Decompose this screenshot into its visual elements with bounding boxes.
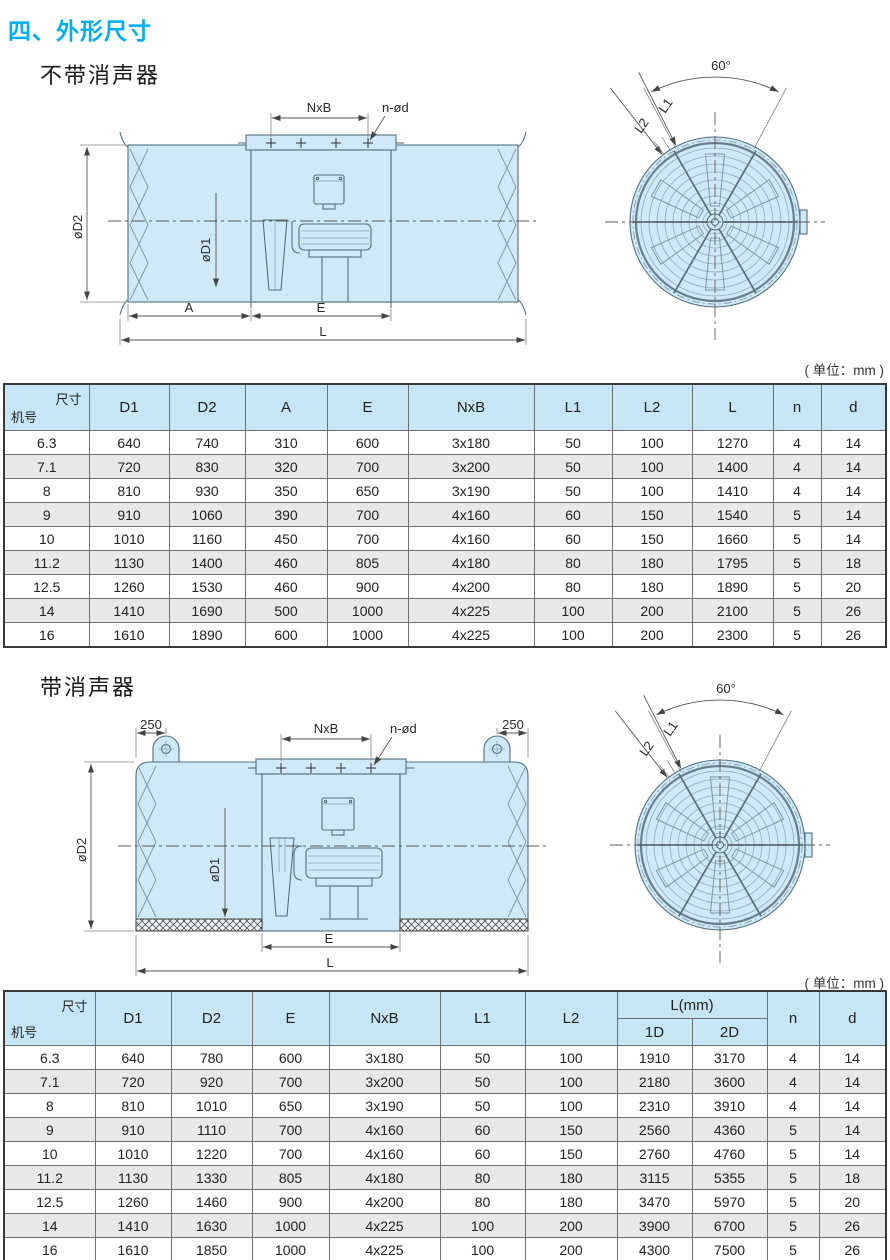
- dimensions-table-no-silencer: 尺寸 机号 D1 D2 A E NxB L1 L2 L n d 6.364074…: [3, 383, 887, 648]
- table-cell: 700: [252, 1142, 329, 1166]
- table-row: 6.36407806003x1805010019103170414: [4, 1046, 886, 1070]
- flange-offset-dimensions: L1 L2: [610, 72, 676, 155]
- column-header: L1: [440, 991, 525, 1046]
- dim-label-od2: øD2: [74, 838, 89, 863]
- table-cell: 640: [95, 1046, 171, 1070]
- column-header: D1: [89, 384, 169, 431]
- junction-box: [314, 175, 344, 209]
- dim-label-od1: øD1: [207, 858, 222, 883]
- table-cell: 100: [440, 1238, 525, 1260]
- table-cell: 26: [821, 599, 886, 623]
- table-cell: 14: [821, 455, 886, 479]
- table-cell: 3x190: [408, 479, 534, 503]
- table-cell: 4: [773, 479, 821, 503]
- table-row: 141410169050010004x2251002002100526: [4, 599, 886, 623]
- corner-label-size: 尺寸: [55, 389, 81, 408]
- table-cell: 80: [440, 1190, 525, 1214]
- table-cell: 6.3: [4, 1046, 95, 1070]
- table-row: 88109303506503x190501001410414: [4, 479, 886, 503]
- table-cell: 50: [440, 1070, 525, 1094]
- table-cell: 4x180: [329, 1166, 440, 1190]
- table-cell: 900: [327, 575, 408, 599]
- table-cell: 200: [525, 1238, 617, 1260]
- column-header: d: [819, 991, 886, 1046]
- table-cell: 11.2: [4, 551, 89, 575]
- table-cell: 1010: [171, 1094, 252, 1118]
- table-row: 7.17208303207003x200501001400414: [4, 455, 886, 479]
- table-cell: 180: [525, 1190, 617, 1214]
- dim-label-od1: øD1: [198, 238, 213, 263]
- table-cell: 1160: [169, 527, 245, 551]
- column-header: n: [773, 384, 821, 431]
- table-cell: 600: [245, 623, 327, 648]
- table-cell: 3600: [692, 1070, 767, 1094]
- table-cell: 4x225: [329, 1214, 440, 1238]
- table-cell: 805: [252, 1166, 329, 1190]
- table-cell: 810: [89, 479, 169, 503]
- column-header: A: [245, 384, 327, 431]
- table-cell: 5: [767, 1142, 819, 1166]
- section-heading-no-silencer: 不带消声器: [40, 58, 160, 90]
- table-cell: 9: [4, 503, 89, 527]
- corner-label-model: 机号: [11, 1022, 37, 1041]
- table-cell: 4360: [692, 1118, 767, 1142]
- table-cell: 5: [773, 503, 821, 527]
- table-cell: 180: [525, 1166, 617, 1190]
- table-cell: 1000: [327, 623, 408, 648]
- table-cell: 12.5: [4, 1190, 95, 1214]
- dim-label-angle: 60°: [711, 58, 731, 73]
- table-cell: 720: [89, 455, 169, 479]
- table-row: 12.5126014609004x2008018034705970520: [4, 1190, 886, 1214]
- table-cell: 3x200: [329, 1070, 440, 1094]
- column-subheader-2d: 2D: [692, 1019, 767, 1046]
- front-view-drawing-1: 60° L1 L2: [600, 40, 890, 355]
- table-header-row: 尺寸 机号 D1 D2 A E NxB L1 L2 L n d: [4, 384, 886, 431]
- side-view-drawing-with-silencer: 250 250 NxB n-ød øD2 øD1 E L: [58, 690, 583, 990]
- table-cell: 3170: [692, 1046, 767, 1070]
- table-cell: 1890: [692, 575, 773, 599]
- table-cell: 100: [525, 1046, 617, 1070]
- table-cell: 600: [327, 431, 408, 455]
- table-cell: 1610: [95, 1238, 171, 1260]
- table-row: 161610189060010004x2251002002300526: [4, 623, 886, 648]
- table-cell: 8: [4, 479, 89, 503]
- table-cell: 60: [534, 527, 612, 551]
- table-cell: 7.1: [4, 1070, 95, 1094]
- table-cell: 6700: [692, 1214, 767, 1238]
- table-cell: 80: [534, 575, 612, 599]
- flange-offset-dimensions: L1 L2: [615, 695, 681, 778]
- table-cell: 910: [89, 503, 169, 527]
- table-cell: 5: [773, 623, 821, 648]
- table-cell: 1000: [252, 1214, 329, 1238]
- unit-note-1: ( 单位：mm ): [600, 359, 884, 379]
- table-cell: 50: [440, 1094, 525, 1118]
- table-cell: 180: [612, 575, 692, 599]
- table-cell: 1460: [171, 1190, 252, 1214]
- table-cell: 3x180: [408, 431, 534, 455]
- table-cell: 390: [245, 503, 327, 527]
- table-cell: 5: [767, 1214, 819, 1238]
- table-cell: 100: [612, 455, 692, 479]
- junction-box: [322, 798, 354, 835]
- table-row: 991010603907004x160601501540514: [4, 503, 886, 527]
- table-cell: 5970: [692, 1190, 767, 1214]
- table-cell: 20: [819, 1190, 886, 1214]
- column-header: L2: [612, 384, 692, 431]
- table-cell: 640: [89, 431, 169, 455]
- table-cell: 4x160: [408, 527, 534, 551]
- table-cell: 14: [4, 599, 89, 623]
- table-cell: 930: [169, 479, 245, 503]
- column-header: n: [767, 991, 819, 1046]
- table-row: 881010106503x1905010023103910414: [4, 1094, 886, 1118]
- table-cell: 2180: [617, 1070, 692, 1094]
- table-cell: 3x190: [329, 1094, 440, 1118]
- table-cell: 1410: [95, 1214, 171, 1238]
- table-cell: 150: [525, 1142, 617, 1166]
- table-cell: 460: [245, 551, 327, 575]
- table-cell: 1220: [171, 1142, 252, 1166]
- dim-label-lug-left: 250: [140, 717, 162, 732]
- table-cell: 740: [169, 431, 245, 455]
- table-cell: 4x225: [408, 623, 534, 648]
- table-row: 10101011604507004x160601501660514: [4, 527, 886, 551]
- table-cell: 1410: [89, 599, 169, 623]
- table-cell: 700: [252, 1070, 329, 1094]
- table-cell: 4x160: [408, 503, 534, 527]
- table-cell: 310: [245, 431, 327, 455]
- table-cell: 1270: [692, 431, 773, 455]
- unit-note-2: ( 单位：mm ): [600, 972, 884, 992]
- table-cell: 1610: [89, 623, 169, 648]
- table-cell: 60: [534, 503, 612, 527]
- dim-label-nxb: NxB: [314, 721, 339, 736]
- table-cell: 100: [525, 1094, 617, 1118]
- table-cell: 10: [4, 527, 89, 551]
- table-cell: 805: [327, 551, 408, 575]
- table-cell: 4x160: [329, 1142, 440, 1166]
- table-cell: 60: [440, 1118, 525, 1142]
- table-cell: 6.3: [4, 431, 89, 455]
- table-cell: 1000: [252, 1238, 329, 1260]
- column-header-l-group: L(mm): [617, 991, 767, 1019]
- dim-label-nxb: NxB: [307, 100, 332, 115]
- table-cell: 2560: [617, 1118, 692, 1142]
- table-cell: 2100: [692, 599, 773, 623]
- dim-label-l1: L1: [655, 95, 676, 115]
- table-cell: 700: [327, 455, 408, 479]
- table-cell: 1540: [692, 503, 773, 527]
- table-row: 10101012207004x1606015027604760514: [4, 1142, 886, 1166]
- table-row: 11.2113013308054x1808018031155355518: [4, 1166, 886, 1190]
- table-cell: 4x200: [408, 575, 534, 599]
- silencer-lining-right: [400, 919, 528, 931]
- table-row: 161610185010004x22510020043007500526: [4, 1238, 886, 1260]
- table-cell: 3470: [617, 1190, 692, 1214]
- table-cell: 10: [4, 1142, 95, 1166]
- table-cell: 14: [821, 479, 886, 503]
- table-cell: 8: [4, 1094, 95, 1118]
- table-cell: 4x225: [329, 1238, 440, 1260]
- table-cell: 1850: [171, 1238, 252, 1260]
- dim-label-od2: øD2: [70, 215, 85, 240]
- table-cell: 650: [252, 1094, 329, 1118]
- table-cell: 1000: [327, 599, 408, 623]
- table-cell: 50: [534, 479, 612, 503]
- column-header: E: [327, 384, 408, 431]
- column-header: D2: [169, 384, 245, 431]
- table-cell: 1260: [89, 575, 169, 599]
- column-header: L2: [525, 991, 617, 1046]
- table-cell: 150: [612, 527, 692, 551]
- table-row: 12.5126015304609004x200801801890520: [4, 575, 886, 599]
- table-cell: 200: [612, 599, 692, 623]
- table-cell: 600: [252, 1046, 329, 1070]
- table-cell: 2300: [692, 623, 773, 648]
- table-cell: 4: [773, 455, 821, 479]
- table-cell: 1110: [171, 1118, 252, 1142]
- table-cell: 1400: [169, 551, 245, 575]
- corner-header-cell: 尺寸 机号: [4, 991, 95, 1046]
- table-cell: 5: [773, 551, 821, 575]
- lifting-lug-left: [153, 736, 179, 762]
- dim-label-lug-right: 250: [502, 717, 524, 732]
- table-cell: 14: [819, 1118, 886, 1142]
- table-cell: 810: [95, 1094, 171, 1118]
- table-cell: 500: [245, 599, 327, 623]
- table-cell: 720: [95, 1070, 171, 1094]
- table-cell: 18: [821, 551, 886, 575]
- table-cell: 5: [773, 599, 821, 623]
- dim-label-nod: n-ød: [382, 100, 409, 115]
- table-cell: 320: [245, 455, 327, 479]
- column-header: NxB: [329, 991, 440, 1046]
- table-cell: 5355: [692, 1166, 767, 1190]
- table-row: 7.17209207003x2005010021803600414: [4, 1070, 886, 1094]
- table-cell: 4: [767, 1070, 819, 1094]
- table-cell: 700: [252, 1118, 329, 1142]
- table-cell: 2760: [617, 1142, 692, 1166]
- table-cell: 14: [821, 527, 886, 551]
- table-cell: 1330: [171, 1166, 252, 1190]
- table-cell: 100: [612, 479, 692, 503]
- table-cell: 1060: [169, 503, 245, 527]
- table-cell: 4x180: [408, 551, 534, 575]
- table-cell: 1400: [692, 455, 773, 479]
- table-cell: 18: [819, 1166, 886, 1190]
- table-cell: 4300: [617, 1238, 692, 1260]
- table-cell: 2310: [617, 1094, 692, 1118]
- table-cell: 180: [612, 551, 692, 575]
- dimensions-table-with-silencer: 尺寸 机号 D1 D2 E NxB L1 L2 L(mm) n d 1D 2D …: [3, 990, 887, 1260]
- front-view-drawing-2: 60° L1 L2: [605, 663, 890, 978]
- table-cell: 830: [169, 455, 245, 479]
- table-cell: 1795: [692, 551, 773, 575]
- table-cell: 900: [252, 1190, 329, 1214]
- dim-label-l: L: [326, 955, 333, 970]
- table-cell: 1530: [169, 575, 245, 599]
- table-cell: 700: [327, 527, 408, 551]
- table-cell: 80: [440, 1166, 525, 1190]
- table-cell: 1010: [89, 527, 169, 551]
- table-cell: 7.1: [4, 455, 89, 479]
- column-header: L1: [534, 384, 612, 431]
- table-cell: 5: [767, 1166, 819, 1190]
- table-cell: 1890: [169, 623, 245, 648]
- table-cell: 460: [245, 575, 327, 599]
- dim-label-l1: L1: [660, 718, 681, 738]
- table-cell: 650: [327, 479, 408, 503]
- column-header: E: [252, 991, 329, 1046]
- table-cell: 4x225: [408, 599, 534, 623]
- table-cell: 1410: [692, 479, 773, 503]
- table-cell: 4: [767, 1046, 819, 1070]
- page-title: 四、外形尺寸: [8, 12, 152, 46]
- table-cell: 80: [534, 551, 612, 575]
- table-cell: 200: [612, 623, 692, 648]
- table-cell: 780: [171, 1046, 252, 1070]
- table-cell: 50: [440, 1046, 525, 1070]
- table-row: 141410163010004x22510020039006700526: [4, 1214, 886, 1238]
- column-subheader-1d: 1D: [617, 1019, 692, 1046]
- table-cell: 5: [767, 1238, 819, 1260]
- table-cell: 60: [440, 1142, 525, 1166]
- table-cell: 1630: [171, 1214, 252, 1238]
- table-cell: 26: [819, 1214, 886, 1238]
- table-cell: 100: [612, 431, 692, 455]
- table-cell: 1910: [617, 1046, 692, 1070]
- table-cell: 3x180: [329, 1046, 440, 1070]
- table-cell: 350: [245, 479, 327, 503]
- dim-label-nod: n-ød: [390, 721, 417, 736]
- table-cell: 14: [819, 1094, 886, 1118]
- table-cell: 1010: [95, 1142, 171, 1166]
- corner-label-model: 机号: [11, 407, 37, 426]
- table-cell: 11.2: [4, 1166, 95, 1190]
- table-row: 11.2113014004608054x180801801795518: [4, 551, 886, 575]
- column-header: D2: [171, 991, 252, 1046]
- column-header: L: [692, 384, 773, 431]
- catalog-page: 四、外形尺寸 不带消声器: [0, 0, 890, 1260]
- dim-label-angle: 60°: [716, 681, 736, 696]
- table-cell: 200: [525, 1214, 617, 1238]
- table-row: 6.36407403106003x180501001270414: [4, 431, 886, 455]
- table-cell: 3900: [617, 1214, 692, 1238]
- table-cell: 14: [821, 431, 886, 455]
- table-cell: 14: [819, 1046, 886, 1070]
- table-cell: 14: [821, 503, 886, 527]
- table-cell: 3910: [692, 1094, 767, 1118]
- table-cell: 700: [327, 503, 408, 527]
- table-cell: 450: [245, 527, 327, 551]
- table-cell: 100: [534, 599, 612, 623]
- dim-label-e: E: [317, 300, 326, 315]
- table-cell: 5: [773, 575, 821, 599]
- table-cell: 4760: [692, 1142, 767, 1166]
- column-header: D1: [95, 991, 171, 1046]
- corner-label-size: 尺寸: [61, 996, 87, 1015]
- table-cell: 16: [4, 623, 89, 648]
- table-cell: 1260: [95, 1190, 171, 1214]
- table-cell: 20: [821, 575, 886, 599]
- table-cell: 4: [767, 1094, 819, 1118]
- table-cell: 14: [819, 1070, 886, 1094]
- side-view-drawing-no-silencer: øD2 øD1 A E L NxB n-ød: [60, 95, 565, 355]
- table-cell: 1660: [692, 527, 773, 551]
- table-cell: 3115: [617, 1166, 692, 1190]
- table-cell: 100: [534, 623, 612, 648]
- table-cell: 5: [773, 527, 821, 551]
- dim-label-l: L: [319, 324, 326, 339]
- table-header-row: 尺寸 机号 D1 D2 E NxB L1 L2 L(mm) n d: [4, 991, 886, 1019]
- table-cell: 150: [525, 1118, 617, 1142]
- table-cell: 920: [171, 1070, 252, 1094]
- table-cell: 1690: [169, 599, 245, 623]
- table-cell: 4x200: [329, 1190, 440, 1214]
- table-cell: 100: [440, 1214, 525, 1238]
- table-cell: 4x160: [329, 1118, 440, 1142]
- table-cell: 5: [767, 1190, 819, 1214]
- column-header: d: [821, 384, 886, 431]
- corner-header-cell: 尺寸 机号: [4, 384, 89, 431]
- table-cell: 3x200: [408, 455, 534, 479]
- table-cell: 7500: [692, 1238, 767, 1260]
- table-cell: 4: [773, 431, 821, 455]
- column-header: NxB: [408, 384, 534, 431]
- table-cell: 16: [4, 1238, 95, 1260]
- table-cell: 14: [4, 1214, 95, 1238]
- table-cell: 50: [534, 431, 612, 455]
- table-cell: 12.5: [4, 575, 89, 599]
- silencer-lining-left: [136, 919, 262, 931]
- dim-label-e: E: [325, 931, 334, 946]
- table-cell: 5: [767, 1118, 819, 1142]
- table-cell: 14: [819, 1142, 886, 1166]
- table-cell: 26: [821, 623, 886, 648]
- table-row: 991011107004x1606015025604360514: [4, 1118, 886, 1142]
- table-cell: 910: [95, 1118, 171, 1142]
- table-cell: 26: [819, 1238, 886, 1260]
- table-cell: 9: [4, 1118, 95, 1142]
- lifting-lug-right: [484, 736, 510, 762]
- table-cell: 1130: [95, 1166, 171, 1190]
- table-cell: 1130: [89, 551, 169, 575]
- table-cell: 150: [612, 503, 692, 527]
- table-cell: 100: [525, 1070, 617, 1094]
- dim-label-a: A: [185, 300, 194, 315]
- table-cell: 50: [534, 455, 612, 479]
